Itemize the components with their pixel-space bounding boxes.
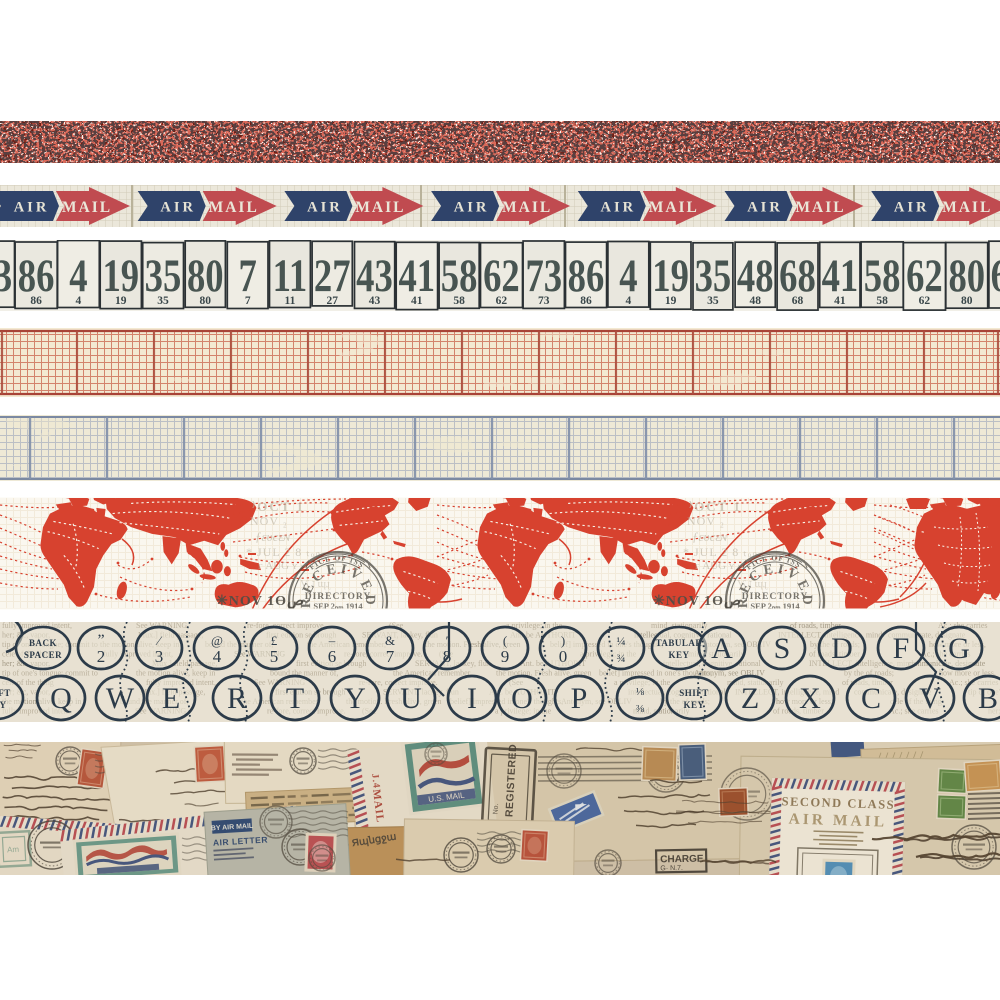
svg-text:TABULAR: TABULAR: [656, 638, 703, 648]
svg-text:tip of one's tongue; commit to: tip of one's tongue; commit to: [2, 669, 98, 678]
svg-text:7: 7: [245, 295, 251, 307]
svg-text:E: E: [162, 682, 180, 715]
svg-text:2: 2: [97, 647, 106, 666]
svg-text:T: T: [286, 682, 304, 715]
svg-text:73: 73: [0, 250, 12, 302]
svg-text:58: 58: [453, 295, 465, 307]
svg-text:80: 80: [961, 295, 973, 307]
svg-text:£: £: [271, 633, 278, 648]
svg-text:62: 62: [496, 295, 508, 307]
svg-text:A: A: [711, 632, 733, 665]
svg-text:41: 41: [834, 295, 846, 307]
svg-text:SHIFT: SHIFT: [679, 688, 709, 698]
svg-text:0: 0: [559, 647, 568, 666]
svg-text:62: 62: [919, 295, 931, 307]
svg-text:43: 43: [369, 295, 381, 307]
svg-text:F: F: [893, 632, 910, 665]
svg-text:4: 4: [213, 647, 222, 666]
svg-text:X: X: [799, 682, 821, 715]
svg-text:BACK: BACK: [29, 638, 57, 648]
svg-text:5: 5: [270, 647, 279, 666]
svg-text:73: 73: [538, 295, 550, 307]
svg-text:Y: Y: [344, 682, 366, 715]
svg-text:35: 35: [707, 295, 719, 307]
svg-text:4: 4: [626, 295, 632, 307]
svg-text:⅛: ⅛: [636, 686, 645, 698]
svg-text:11: 11: [284, 295, 295, 307]
svg-text:P: P: [571, 682, 588, 715]
svg-text:58: 58: [876, 295, 888, 307]
svg-text:KEY: KEY: [0, 700, 7, 710]
svg-text:(: (: [503, 633, 507, 648]
svg-text:Z: Z: [741, 682, 759, 715]
svg-text:S: S: [774, 632, 791, 665]
svg-text:6: 6: [328, 647, 337, 666]
svg-text:35: 35: [157, 295, 169, 307]
svg-text:62: 62: [991, 250, 1000, 302]
svg-text:86: 86: [580, 295, 592, 307]
svg-text:C: C: [861, 682, 881, 715]
svg-text:I: I: [467, 682, 477, 715]
svg-text:SHIFT: SHIFT: [0, 688, 11, 698]
svg-text:7: 7: [386, 647, 395, 666]
svg-text:R: R: [227, 682, 247, 715]
svg-text:O: O: [511, 682, 533, 715]
svg-text:): ): [561, 633, 565, 648]
svg-text:–: –: [328, 633, 336, 648]
svg-text:⅜: ⅜: [636, 703, 645, 715]
svg-text:D: D: [831, 632, 853, 665]
svg-text:41: 41: [411, 295, 423, 307]
svg-text:&: &: [385, 633, 395, 648]
svg-text:19: 19: [665, 295, 677, 307]
svg-text:86: 86: [30, 295, 42, 307]
svg-text:3: 3: [155, 647, 164, 666]
svg-text:KEY: KEY: [668, 650, 689, 660]
svg-text:B: B: [978, 682, 998, 715]
svg-text:68: 68: [792, 295, 804, 307]
svg-text:48: 48: [749, 295, 761, 307]
svg-text:¾: ¾: [617, 651, 626, 665]
svg-text:G: G: [948, 632, 970, 665]
svg-text:W: W: [106, 682, 135, 715]
svg-text:80: 80: [200, 295, 212, 307]
svg-text:@: @: [211, 633, 223, 648]
svg-text:4: 4: [76, 295, 82, 307]
svg-text:U: U: [400, 682, 422, 715]
svg-text:SPACER: SPACER: [24, 650, 62, 660]
svg-text:27: 27: [326, 295, 338, 307]
svg-text:¼: ¼: [617, 634, 626, 648]
svg-text:9: 9: [501, 647, 510, 666]
svg-text:KEY: KEY: [683, 700, 704, 710]
svg-text:Q: Q: [50, 682, 72, 715]
svg-text:19: 19: [115, 295, 127, 307]
